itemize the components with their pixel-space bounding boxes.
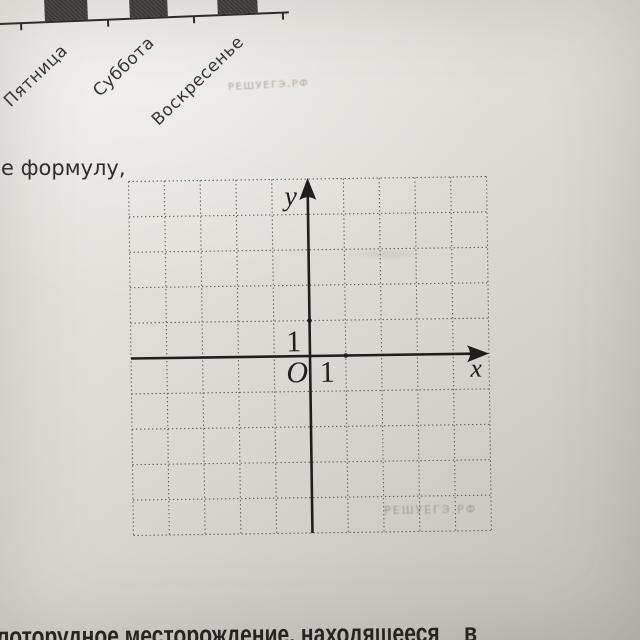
watermark-stamp: РЕШУЕГЭ.РФ: [228, 78, 310, 93]
y-axis-line: [308, 195, 313, 533]
x-unit-tick-dot: [343, 353, 348, 358]
chart-axis-tick: [282, 13, 284, 20]
x-axis-label: x: [469, 354, 482, 383]
worksheet-photo: Пятница Суббота Воскресенье РЕШУЕГЭ.РФ е…: [0, 0, 640, 640]
grid-svg: y x O 1 1: [129, 177, 492, 536]
bottom-text-main: лоторудное месторождение, находящееся: [0, 618, 440, 640]
bar-friday: [43, 0, 88, 21]
y-unit-tick-dot: [307, 318, 312, 323]
text-fragment-bottom: лоторудное месторождение, находящееся в: [0, 616, 620, 640]
watermark-stamp: РЕШУЕГЭ.РФ: [384, 503, 477, 517]
chart-axis-tick: [193, 16, 195, 23]
text-fragment-left: е формулу,: [1, 156, 126, 180]
chart-axis-tick: [20, 23, 22, 30]
coordinate-grid: y x O 1 1 РЕШУЕГЭ.РФ: [129, 177, 492, 536]
x-unit-label: 1: [319, 356, 334, 389]
bottom-text-tail: в: [464, 618, 477, 640]
y-axis-arrow-icon: [299, 178, 316, 200]
bar-saturday: [128, 0, 168, 18]
chart-axis-tick: [107, 20, 109, 27]
y-unit-label: 1: [286, 325, 301, 358]
y-axis-label: y: [281, 181, 297, 212]
origin-label: O: [286, 356, 308, 389]
